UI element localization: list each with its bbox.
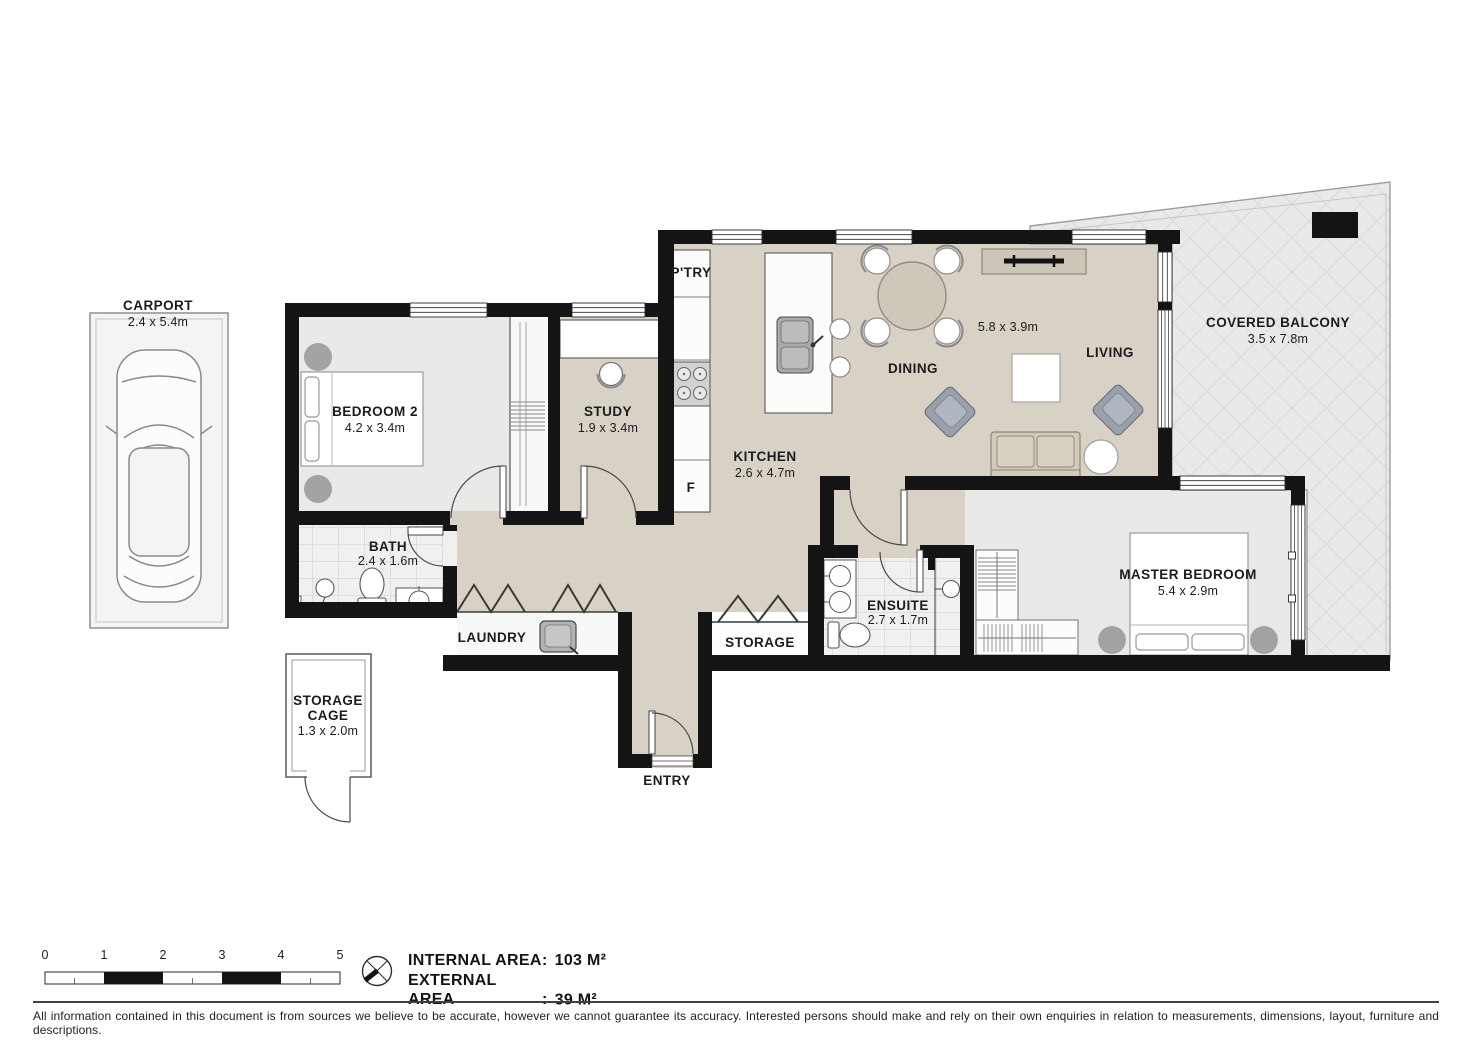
scale-tick-5: 5 [337,948,344,962]
kitchen-label: KITCHEN 2.6 x 4.7m [733,449,796,481]
toilet-icon [828,622,870,648]
window-living-side [1158,252,1172,302]
disclaimer-text: All information contained in this docume… [33,1001,1439,1037]
bedside-table-icon [304,475,332,503]
storage-cage-label: STORAGE CAGE 1.3 x 2.0m [293,694,363,738]
floor-plan-page: CARPORT 2.4 x 5.4m BEDROOM 2 4.2 x 3.4m … [0,0,1472,1040]
sliding-door-balcony [1158,310,1172,428]
bedside-table-icon [1098,626,1126,654]
desk-chair-icon [600,363,623,386]
window-bedroom2 [410,303,487,317]
scale-bar [45,972,340,984]
door-leaf-ensuite [917,550,923,592]
storage-label: STORAGE [725,635,795,651]
laundry-label: LAUNDRY [458,630,527,646]
shower-icon [316,579,334,597]
internal-area-row: INTERNAL AREA:103 M² [408,951,606,971]
scale-tick-1: 1 [101,948,108,962]
side-table-icon [1084,440,1118,474]
carport-label: CARPORT 2.4 x 5.4m [123,298,193,330]
shower-icon [943,581,960,598]
window-dining [836,230,912,244]
window-kitchen [712,230,762,244]
sliding-door-master [1289,505,1306,640]
cage-door-arc [305,777,350,822]
door-leaf-bedroom2 [500,466,506,518]
balcony-label: COVERED BALCONY 3.5 x 7.8m [1206,315,1350,347]
car-icon [106,350,212,602]
bedside-table-icon [1250,626,1278,654]
bedroom2-label: BEDROOM 2 4.2 x 3.4m [332,404,418,436]
door-leaf-master-hall [901,490,907,545]
ensuite-label: ENSUITE 2.7 x 1.7m [867,598,929,628]
coffee-table-icon [1012,354,1060,402]
master-bedroom-label: MASTER BEDROOM 5.4 x 2.9m [1119,567,1257,599]
compass-icon [363,957,392,986]
fridge-label: F [687,480,696,496]
dining-chair-icon [934,248,960,274]
stool-icon [830,319,850,339]
balcony-pillar [1312,212,1358,238]
stool-icon [830,357,850,377]
bath-label: BATH 2.4 x 1.6m [358,539,418,569]
bedside-table-icon [304,343,332,371]
window-living [1072,230,1146,244]
scale-tick-4: 4 [278,948,285,962]
dining-chair-icon [934,318,960,344]
scale-tick-0: 0 [42,948,49,962]
window-study [572,303,645,317]
door-leaf-bath [408,527,443,535]
sofa-icon [991,432,1080,479]
carport-area [90,313,228,628]
living-label: LIVING [1086,345,1134,361]
dining-chair-icon [864,248,890,274]
dining-table-icon [878,262,946,330]
dining-label: DINING [888,361,938,377]
window-master [1180,476,1285,490]
dining-dim: 5.8 x 3.9m [978,319,1038,335]
scale-tick-3: 3 [219,948,226,962]
cooktop-icon [673,362,710,406]
laundry-sink-icon [540,621,578,654]
study-label: STUDY 1.9 x 3.4m [578,404,638,436]
double-vanity-icon [824,560,856,618]
door-leaf-study [581,466,587,518]
pantry-label: P'TRY [671,265,712,281]
door-leaf-entry [649,711,655,754]
dining-chair-icon [864,318,890,344]
entry-label: ENTRY [643,773,691,789]
desk-icon [560,320,660,358]
scale-tick-2: 2 [160,948,167,962]
floor-plan-drawing [0,0,1472,1040]
